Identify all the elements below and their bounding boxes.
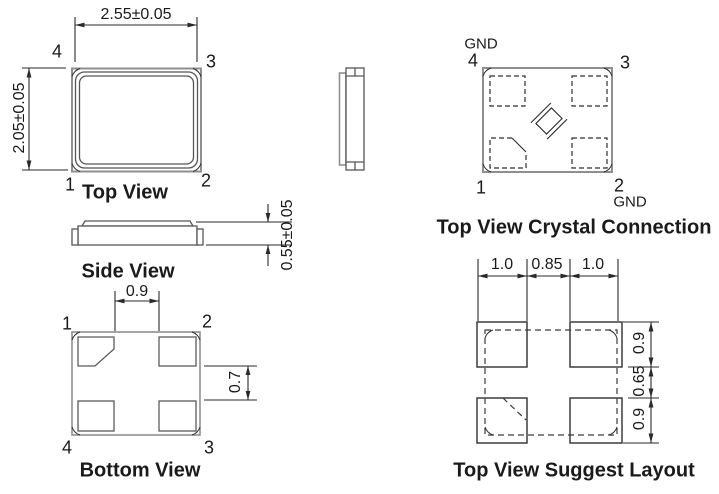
end-view-drawing [332, 58, 377, 178]
layout-dim-middle-gap: 0.65 [631, 365, 649, 396]
top-view-pin-3: 3 [206, 52, 216, 73]
crystal-package-drawing: 2.55±0.05 2.05±0.05 4 3 1 2 Top View 0.5… [0, 0, 719, 494]
bottom-view-pin-2: 2 [202, 312, 212, 333]
crystal-connection-title: Top View Crystal Connection [437, 217, 712, 240]
top-view-pin-4: 4 [52, 42, 62, 63]
crystal-symbol [531, 103, 567, 139]
crystal-connection-pin-3: 3 [620, 53, 630, 74]
bottom-view-pad-gap-dimension: 0.9 [126, 283, 148, 301]
layout-dim-center: 0.85 [531, 256, 562, 274]
side-view-title: Side View [81, 261, 174, 284]
crystal-connection-drawing [475, 60, 625, 180]
bottom-view-pin-3: 3 [204, 438, 214, 459]
top-view-title: Top View [82, 182, 168, 205]
top-view-height-dimension: 2.05±0.05 [11, 82, 29, 153]
crystal-connection-pin-1: 1 [476, 178, 486, 199]
bottom-view-edge-dimension: 0.7 [227, 371, 245, 393]
top-view-pin-2: 2 [201, 171, 211, 192]
top-view-pin-1: 1 [65, 175, 75, 196]
top-view-width-dimension: 2.55±0.05 [100, 6, 171, 24]
crystal-connection-gnd-bottom: GND [613, 194, 646, 211]
top-view-drawing [10, 5, 300, 210]
layout-dim-right: 1.0 [582, 256, 604, 274]
layout-dim-bottom-pad: 0.9 [631, 408, 649, 430]
layout-dim-top-pad: 0.9 [631, 332, 649, 354]
suggest-layout-title: Top View Suggest Layout [453, 460, 695, 483]
layout-dim-left: 1.0 [491, 256, 513, 274]
side-view-height-dimension: 0.55±0.05 [279, 199, 297, 270]
bottom-view-pin-4: 4 [62, 438, 72, 459]
bottom-view-pin-1: 1 [62, 314, 72, 335]
bottom-view-title: Bottom View [80, 460, 201, 483]
bottom-view-drawing [55, 285, 265, 440]
crystal-connection-pin-4: 4 [468, 51, 478, 72]
